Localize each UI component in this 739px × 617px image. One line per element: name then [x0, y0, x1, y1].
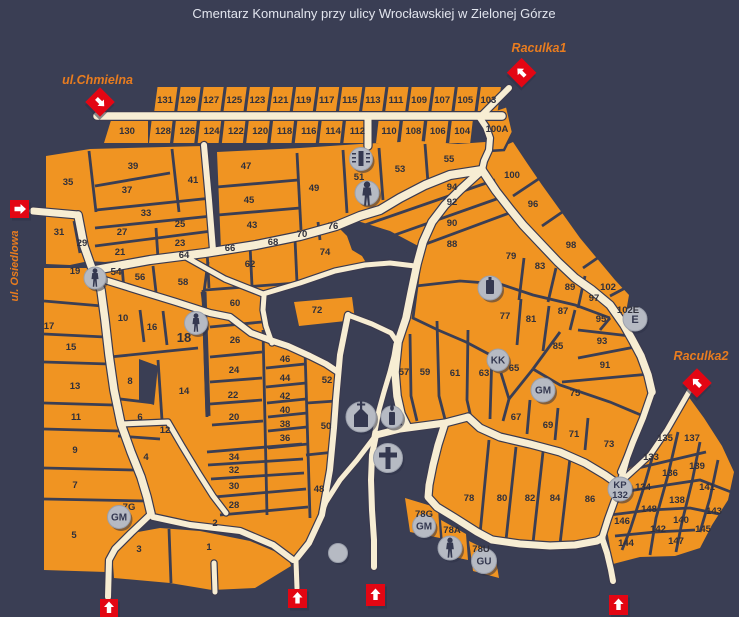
svg-text:113: 113: [365, 95, 380, 106]
svg-text:12: 12: [160, 425, 171, 436]
svg-text:70: 70: [297, 229, 308, 240]
svg-text:127: 127: [203, 95, 219, 106]
svg-text:GM: GM: [535, 386, 551, 397]
svg-text:128: 128: [155, 126, 171, 137]
svg-text:34: 34: [229, 452, 240, 463]
svg-text:117: 117: [319, 95, 334, 106]
svg-text:146: 146: [614, 516, 630, 527]
svg-text:53: 53: [395, 164, 406, 175]
svg-text:55: 55: [444, 154, 455, 165]
svg-text:GM: GM: [111, 513, 127, 524]
svg-text:48: 48: [314, 484, 325, 495]
svg-text:64: 64: [179, 250, 190, 261]
svg-text:67: 67: [511, 412, 522, 423]
svg-text:10: 10: [118, 313, 129, 324]
svg-text:19: 19: [70, 266, 81, 277]
svg-text:30: 30: [229, 481, 240, 492]
svg-text:125: 125: [226, 95, 243, 106]
svg-text:108: 108: [405, 126, 421, 137]
svg-text:112: 112: [350, 126, 365, 137]
svg-text:102E: 102E: [617, 305, 639, 316]
svg-text:135: 135: [657, 433, 674, 444]
svg-text:69: 69: [543, 420, 554, 431]
svg-text:54: 54: [110, 267, 122, 278]
svg-text:74: 74: [320, 247, 331, 258]
svg-text:16: 16: [147, 322, 158, 333]
svg-text:39: 39: [128, 161, 139, 172]
svg-text:141: 141: [699, 482, 716, 493]
svg-text:60: 60: [230, 298, 241, 309]
svg-text:89: 89: [565, 282, 576, 293]
svg-text:23: 23: [175, 238, 186, 249]
svg-text:105: 105: [457, 95, 474, 106]
svg-text:26: 26: [230, 335, 241, 346]
svg-text:96: 96: [528, 199, 539, 210]
svg-text:17: 17: [44, 321, 55, 332]
svg-text:91: 91: [600, 360, 611, 371]
svg-text:3: 3: [136, 544, 141, 555]
svg-text:25: 25: [175, 219, 186, 230]
svg-text:11: 11: [71, 412, 82, 423]
svg-text:97: 97: [589, 293, 600, 304]
svg-text:50: 50: [321, 421, 332, 432]
svg-text:22: 22: [228, 390, 239, 401]
svg-text:ul.Chmielna: ul.Chmielna: [62, 73, 133, 87]
svg-text:58: 58: [178, 277, 189, 288]
svg-text:27: 27: [117, 227, 128, 238]
svg-text:130: 130: [119, 126, 135, 137]
svg-text:14: 14: [179, 386, 190, 397]
svg-text:77: 77: [500, 311, 511, 322]
svg-text:5: 5: [71, 530, 77, 541]
svg-text:92: 92: [447, 197, 458, 208]
svg-text:126: 126: [179, 126, 195, 137]
svg-text:93: 93: [597, 336, 608, 347]
svg-text:41: 41: [188, 175, 199, 186]
svg-text:115: 115: [342, 95, 358, 106]
svg-text:44: 44: [280, 373, 291, 384]
svg-text:62: 62: [245, 259, 256, 270]
svg-text:78: 78: [464, 493, 475, 504]
svg-text:82: 82: [525, 493, 536, 504]
svg-text:21: 21: [115, 247, 126, 258]
svg-text:84: 84: [550, 493, 561, 504]
svg-text:KK: KK: [491, 356, 506, 367]
svg-text:42: 42: [280, 391, 291, 402]
svg-text:78A: 78A: [443, 525, 461, 536]
svg-text:59: 59: [420, 367, 431, 378]
svg-text:46: 46: [280, 354, 291, 365]
svg-text:73: 73: [604, 439, 615, 450]
svg-text:57: 57: [399, 367, 410, 378]
svg-text:GM: GM: [416, 522, 432, 533]
svg-text:143: 143: [706, 506, 722, 517]
svg-text:121: 121: [273, 95, 290, 106]
svg-text:147: 147: [668, 536, 684, 547]
svg-text:137: 137: [684, 433, 700, 444]
svg-text:88: 88: [447, 239, 458, 250]
svg-text:28: 28: [229, 500, 240, 511]
svg-text:15: 15: [66, 342, 77, 353]
svg-text:78G: 78G: [415, 509, 433, 520]
svg-text:118: 118: [277, 126, 292, 137]
svg-text:6: 6: [137, 412, 142, 423]
svg-text:52: 52: [322, 375, 333, 386]
svg-text:136: 136: [662, 468, 678, 479]
svg-text:87: 87: [558, 306, 569, 317]
svg-text:120: 120: [252, 126, 268, 137]
svg-text:45: 45: [244, 195, 255, 206]
svg-text:119: 119: [296, 95, 311, 106]
svg-text:36: 36: [280, 433, 291, 444]
svg-text:2: 2: [212, 518, 217, 529]
svg-text:37: 37: [122, 185, 133, 196]
svg-text:100: 100: [504, 170, 520, 181]
svg-text:76: 76: [328, 221, 339, 232]
svg-text:106: 106: [430, 126, 446, 137]
svg-text:78U: 78U: [472, 544, 490, 555]
svg-text:63: 63: [479, 368, 490, 379]
svg-text:80: 80: [497, 493, 508, 504]
svg-text:114: 114: [325, 126, 341, 137]
svg-text:132: 132: [612, 490, 628, 501]
svg-text:139: 139: [689, 461, 705, 472]
svg-text:43: 43: [247, 220, 258, 231]
svg-text:35: 35: [63, 177, 74, 188]
svg-text:85: 85: [553, 341, 564, 352]
svg-text:18: 18: [177, 330, 191, 345]
svg-text:102: 102: [600, 282, 616, 293]
svg-text:104: 104: [454, 126, 471, 137]
svg-text:ul. Osiedlowa: ul. Osiedlowa: [9, 231, 21, 302]
svg-text:140: 140: [673, 515, 689, 526]
svg-text:4: 4: [143, 452, 149, 463]
svg-text:38: 38: [280, 419, 291, 430]
svg-text:109: 109: [411, 95, 427, 106]
svg-text:111: 111: [389, 95, 405, 106]
svg-text:81: 81: [526, 314, 537, 325]
svg-text:83: 83: [535, 261, 546, 272]
svg-text:Cmentarz Komunalny przy ulicy: Cmentarz Komunalny przy ulicy Wrocławski…: [192, 6, 555, 21]
svg-text:71: 71: [569, 429, 580, 440]
svg-text:79: 79: [506, 251, 517, 262]
svg-text:40: 40: [280, 405, 291, 416]
svg-text:7: 7: [72, 480, 77, 491]
svg-text:98: 98: [566, 240, 577, 251]
svg-text:142: 142: [650, 524, 666, 535]
svg-text:9: 9: [72, 445, 77, 456]
svg-text:129: 129: [180, 95, 196, 106]
svg-text:47: 47: [241, 161, 252, 172]
svg-text:61: 61: [450, 368, 461, 379]
svg-text:133: 133: [643, 452, 659, 463]
svg-text:86: 86: [585, 494, 596, 505]
svg-text:116: 116: [301, 126, 316, 137]
svg-text:134: 134: [635, 482, 652, 493]
svg-text:8: 8: [127, 376, 132, 387]
svg-text:GU: GU: [477, 557, 492, 568]
svg-text:148: 148: [641, 504, 657, 515]
svg-text:49: 49: [309, 183, 320, 194]
svg-text:144: 144: [618, 538, 635, 549]
svg-text:90: 90: [447, 218, 458, 229]
svg-text:103: 103: [480, 95, 496, 106]
svg-text:65: 65: [509, 363, 520, 374]
svg-text:32: 32: [229, 465, 240, 476]
svg-text:Raculka1: Raculka1: [512, 41, 567, 55]
svg-text:122: 122: [228, 126, 244, 137]
svg-text:31: 31: [54, 227, 65, 238]
svg-text:29: 29: [77, 238, 88, 249]
svg-text:94: 94: [447, 182, 458, 193]
svg-text:13: 13: [70, 381, 81, 392]
svg-text:95: 95: [596, 314, 607, 325]
svg-text:51: 51: [354, 172, 365, 183]
svg-text:145: 145: [695, 524, 712, 535]
svg-text:107: 107: [434, 95, 450, 106]
svg-text:75: 75: [570, 388, 581, 399]
svg-text:Raculka2: Raculka2: [674, 349, 729, 363]
svg-text:24: 24: [229, 365, 240, 376]
svg-text:20: 20: [229, 412, 240, 423]
svg-text:138: 138: [669, 495, 685, 506]
svg-text:66: 66: [225, 243, 236, 254]
svg-text:1: 1: [206, 542, 212, 553]
svg-text:68: 68: [268, 237, 279, 248]
svg-text:110: 110: [381, 126, 396, 137]
svg-text:100A: 100A: [486, 124, 509, 135]
svg-text:33: 33: [141, 208, 152, 219]
svg-text:131: 131: [157, 95, 174, 106]
svg-text:123: 123: [249, 95, 265, 106]
svg-text:72: 72: [312, 305, 323, 316]
svg-text:124: 124: [204, 126, 221, 137]
svg-text:56: 56: [135, 272, 146, 283]
